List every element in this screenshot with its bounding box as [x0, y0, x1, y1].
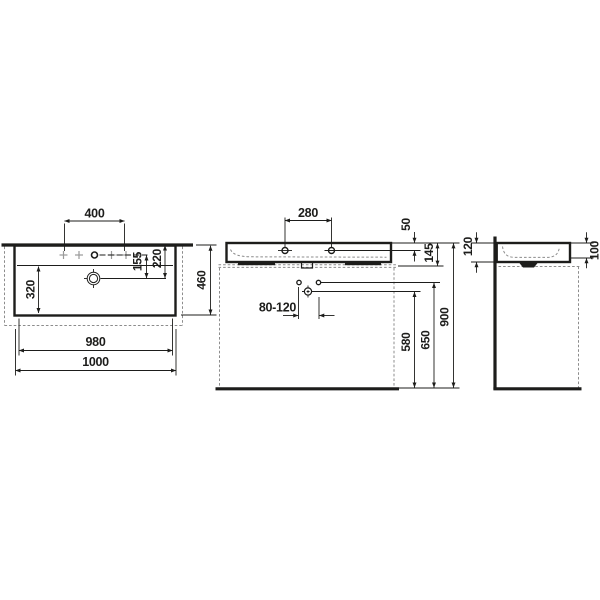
dim-220-rim-to-drain: 220	[150, 246, 165, 279]
dim-900-rim-height: 900	[438, 243, 454, 387]
dim-label: 1000	[82, 355, 109, 369]
drain-symbol	[84, 269, 100, 288]
tap-hole-icon	[92, 252, 98, 258]
dim-label: 320	[24, 279, 38, 299]
dim-label: 650	[419, 330, 433, 350]
dim-280-anchor-spacing: 280	[285, 206, 332, 221]
dim-label: 220	[150, 248, 164, 268]
fixing-bolt-icon	[297, 280, 301, 284]
dim-label: 120	[461, 236, 475, 256]
dim-label: 145	[422, 243, 436, 263]
dim-980-inner-width: 980	[19, 319, 173, 356]
dim-100-bowl-depth: 100	[571, 232, 600, 268]
profile-basin-outline	[497, 243, 570, 262]
dim-label: 50	[399, 218, 413, 231]
dim-label: 280	[298, 206, 318, 220]
dim-580-trap-height: 580	[399, 292, 415, 388]
trap-outlet-symbol	[302, 286, 314, 298]
dim-label: 900	[438, 307, 452, 327]
dim-320-bowl-height: 320	[24, 267, 39, 314]
side-basin-outline	[227, 243, 392, 262]
wall-profile-view: 120 100	[461, 232, 600, 389]
front-view: 400 320 155 220 460 980	[2, 207, 217, 376]
side-section-view: 280 80-120 50 145 580	[216, 206, 460, 389]
dim-155-tapline-to-drain: 155	[131, 251, 147, 278]
washbasin-drawing: 400 320 155 220 460 980	[0, 0, 600, 600]
plus-icon	[75, 251, 83, 259]
dim-label: 400	[85, 207, 105, 221]
dim-label: 460	[195, 270, 209, 290]
profile-bowl-interior-dashed	[503, 247, 560, 258]
dim-label: 580	[399, 332, 413, 352]
fixing-bolt-icon	[316, 280, 320, 284]
anchor-point-left	[278, 218, 292, 254]
dim-120-body-height: 120	[461, 232, 496, 272]
dim-label: 80-120	[259, 301, 296, 315]
dim-label: 980	[86, 335, 106, 349]
dim-label: 155	[131, 251, 145, 271]
dim-label: 100	[588, 240, 600, 260]
dim-460-overall-depth: 460	[181, 245, 217, 315]
dim-145-rim-to-underside: 145	[398, 243, 444, 266]
technical-drawing-canvas: 400 320 155 220 460 980	[0, 0, 600, 600]
dim-650-fixing-height: 650	[419, 283, 435, 388]
dim-50-rim-to-anchor: 50	[399, 218, 415, 262]
plus-icon	[60, 251, 68, 259]
